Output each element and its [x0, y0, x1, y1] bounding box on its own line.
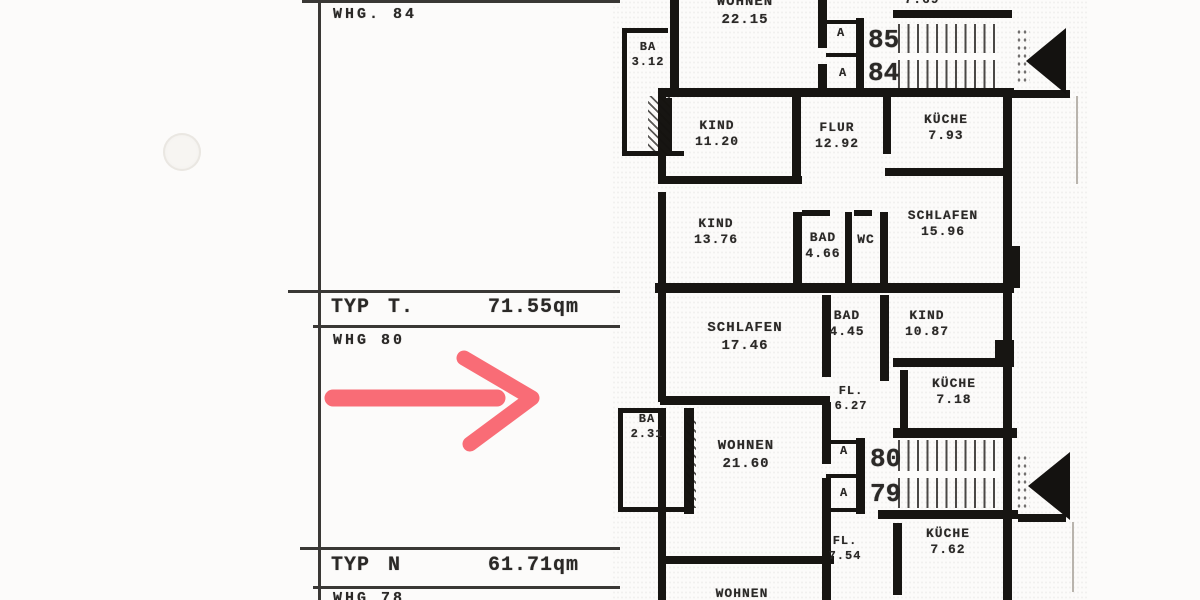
stairwell-unit-number: 84 [868, 60, 899, 86]
wall-segment [1003, 88, 1012, 600]
unit-label-whg-84: WHG. 84 [333, 6, 417, 23]
wall-segment [622, 28, 627, 156]
room-area: 6.27 [830, 399, 872, 414]
wall-segment [660, 396, 830, 405]
entrance-arrow-lower [1028, 452, 1070, 520]
stair-dashes [1016, 454, 1030, 510]
wall-segment [818, 0, 827, 48]
room-label-wohnen-2160: WOHNEN21.60 [700, 438, 792, 473]
wall-segment [893, 428, 1017, 438]
wall-segment [885, 168, 1012, 176]
staircase-upper [898, 24, 1000, 88]
room-name: KÜCHE [908, 112, 984, 128]
wall-segment [618, 507, 684, 512]
wall-segment [792, 96, 801, 178]
room-area: 7.62 [910, 542, 986, 558]
room-name: WOHNEN [696, 586, 788, 600]
wall-segment [1012, 90, 1070, 98]
room-name: WOHNEN [690, 0, 800, 12]
room-label-ba-231: BA2.31 [626, 412, 668, 442]
unit-label-whg-78: WHG 78 [333, 590, 405, 600]
wall-segment [845, 212, 852, 287]
room-label-kind-1087: KIND10.87 [898, 308, 956, 341]
entrance-door-label: A [840, 487, 847, 499]
wall-segment [802, 210, 830, 216]
entrance-door-label: A [839, 67, 846, 79]
room-label-area-769: 7.69 [892, 0, 952, 8]
room-name: KIND [685, 118, 749, 134]
room-label-bad-445: BAD4.45 [824, 308, 870, 341]
room-label-wc: WC [850, 232, 882, 248]
room-name: KIND [898, 308, 956, 324]
room-area: 11.20 [685, 134, 749, 150]
wall-segment [856, 18, 864, 92]
table-rule [300, 547, 620, 550]
table-rule [300, 290, 620, 293]
red-arrow-annotation [320, 345, 550, 460]
room-label-wohnen-2215: WOHNEN22.15 [690, 0, 800, 29]
room-name: FL. [830, 384, 872, 399]
wall-segment [893, 523, 902, 595]
room-name: SCHLAFEN [694, 320, 796, 338]
room-label-fl-754: FL.7.54 [824, 534, 866, 564]
wall-segment [878, 510, 1018, 519]
room-label-flur-1292: FLUR12.92 [806, 120, 868, 153]
type-label: TYP [331, 554, 370, 577]
room-name: BA [628, 40, 668, 55]
room-name: BA [626, 412, 668, 427]
room-name: WOHNEN [700, 438, 792, 456]
wall-segment [900, 370, 908, 430]
stairwell-unit-number: 79 [870, 481, 901, 507]
wall-segment [856, 438, 865, 514]
balcony-line [1076, 96, 1078, 184]
room-label-kind-1376: KIND13.76 [684, 216, 748, 249]
wall-segment [880, 295, 889, 381]
wall-segment [826, 20, 856, 24]
room-label-ba-312: BA3.12 [628, 40, 668, 70]
room-area: 12.92 [806, 136, 868, 152]
entrance-door-label: A [840, 445, 847, 457]
room-area: 7.18 [916, 392, 992, 408]
wall-segment [1003, 246, 1020, 288]
room-area: 7.69 [892, 0, 952, 8]
stairwell-unit-number: 85 [868, 27, 899, 53]
room-area: 2.31 [626, 427, 668, 442]
room-label-schlafen-1746: SCHLAFEN17.46 [694, 320, 796, 355]
stair-dashes [1016, 28, 1030, 84]
wall-segment [826, 508, 856, 512]
wall-segment [670, 0, 679, 90]
type-area: 71.55qm [488, 296, 579, 319]
wall-segment [658, 88, 1014, 97]
room-area: 22.15 [690, 12, 800, 30]
wall-segment [1018, 514, 1066, 522]
wall-segment [618, 408, 623, 512]
room-area: 3.12 [628, 55, 668, 70]
table-rule [313, 325, 620, 328]
room-label-kueche-718: KÜCHE7.18 [916, 376, 992, 409]
table-rule [318, 0, 321, 600]
room-label-kueche-793: KÜCHE7.93 [908, 112, 984, 145]
scanned-floorplan-page: WHG. 84 TYP T. 71.55qm WHG 80 TYP N 61.7… [0, 0, 1200, 600]
wall-segment [893, 10, 1012, 18]
room-label-kind-1120: KIND11.20 [685, 118, 749, 151]
room-area: 4.66 [800, 246, 846, 262]
room-area: 13.76 [684, 232, 748, 248]
wall-segment [854, 210, 872, 216]
room-name: WC [850, 232, 882, 248]
type-code: N [388, 554, 401, 577]
wall-segment [658, 192, 666, 402]
wall-segment [622, 28, 668, 33]
room-area: 7.54 [824, 549, 866, 564]
staircase-lower [898, 440, 1000, 508]
room-label-wohnen-bottom: WOHNEN [696, 586, 788, 600]
entrance-arrow-upper [1026, 28, 1066, 94]
wall-segment [826, 53, 856, 57]
window-hatch [648, 96, 670, 154]
room-label-kueche-762: KÜCHE7.62 [910, 526, 986, 559]
wall-segment [880, 212, 888, 287]
room-name: FLUR [806, 120, 868, 136]
room-area: 17.46 [694, 338, 796, 356]
room-area: 15.96 [894, 224, 992, 240]
room-area: 10.87 [898, 324, 956, 340]
wall-segment [655, 283, 1014, 293]
table-rule [302, 0, 620, 3]
wall-segment [658, 176, 802, 184]
room-name: KIND [684, 216, 748, 232]
table-rule [313, 586, 620, 589]
room-name: BAD [800, 230, 846, 246]
type-row-t: TYP T. 71.55qm [331, 296, 579, 319]
hole-punch-mark [163, 133, 201, 171]
entrance-door-label: A [837, 27, 844, 39]
room-area: 21.60 [700, 456, 792, 474]
room-label-schlafen-1596: SCHLAFEN15.96 [894, 208, 992, 241]
type-label: TYP [331, 296, 370, 319]
room-name: SCHLAFEN [894, 208, 992, 224]
wall-segment [818, 64, 827, 90]
room-label-fl-627: FL.6.27 [830, 384, 872, 414]
wall-segment [883, 96, 891, 154]
room-name: KÜCHE [910, 526, 986, 542]
window-hatch [686, 416, 696, 508]
room-name: BAD [824, 308, 870, 324]
wall-segment [826, 474, 856, 478]
type-row-n: TYP N 61.71qm [331, 554, 579, 577]
room-label-bad-466: BAD4.66 [800, 230, 846, 263]
room-area: 4.45 [824, 324, 870, 340]
type-area: 61.71qm [488, 554, 579, 577]
type-code: T. [388, 296, 414, 319]
balcony-line [1072, 522, 1074, 592]
room-name: KÜCHE [916, 376, 992, 392]
room-name: FL. [824, 534, 866, 549]
wall-segment [660, 556, 834, 564]
room-area: 7.93 [908, 128, 984, 144]
stairwell-unit-number: 80 [870, 446, 901, 472]
